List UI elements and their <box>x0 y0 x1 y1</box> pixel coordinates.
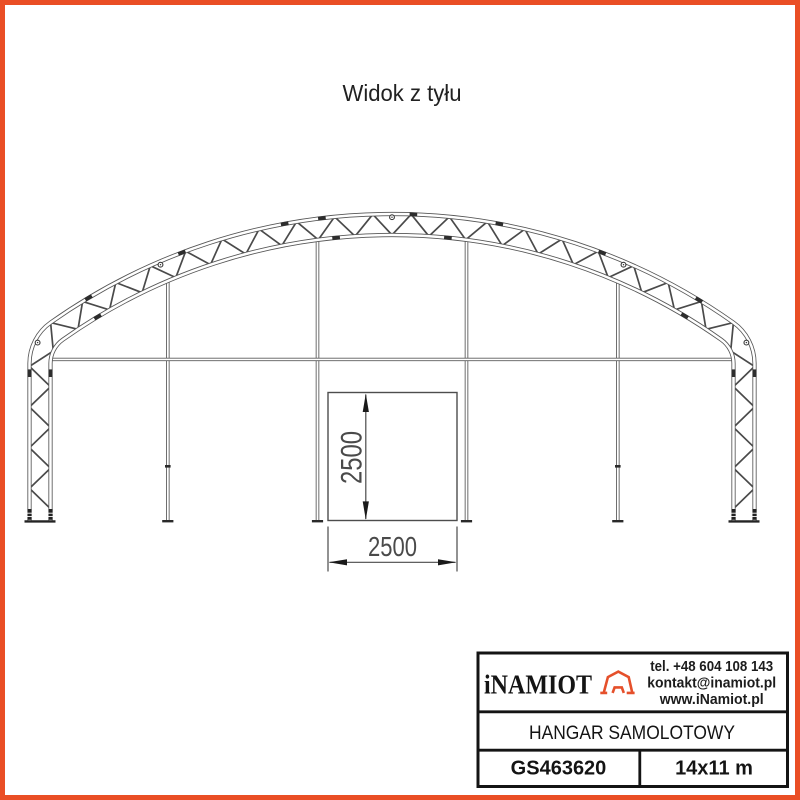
svg-text:Widok z tyłu: Widok z tyłu <box>343 80 462 106</box>
svg-text:www.iNamiot.pl: www.iNamiot.pl <box>659 691 764 708</box>
svg-text:iNAMIOT: iNAMIOT <box>484 670 592 700</box>
svg-text:2500: 2500 <box>335 431 368 484</box>
svg-text:GS463620: GS463620 <box>511 758 607 780</box>
svg-text:2500: 2500 <box>368 531 417 562</box>
svg-text:tel. +48 604 108 143: tel. +48 604 108 143 <box>650 658 773 675</box>
svg-text:HANGAR SAMOLOTOWY: HANGAR SAMOLOTOWY <box>529 722 735 744</box>
svg-text:14x11 m: 14x11 m <box>675 758 753 780</box>
svg-text:kontakt@inamiot.pl: kontakt@inamiot.pl <box>647 675 776 692</box>
